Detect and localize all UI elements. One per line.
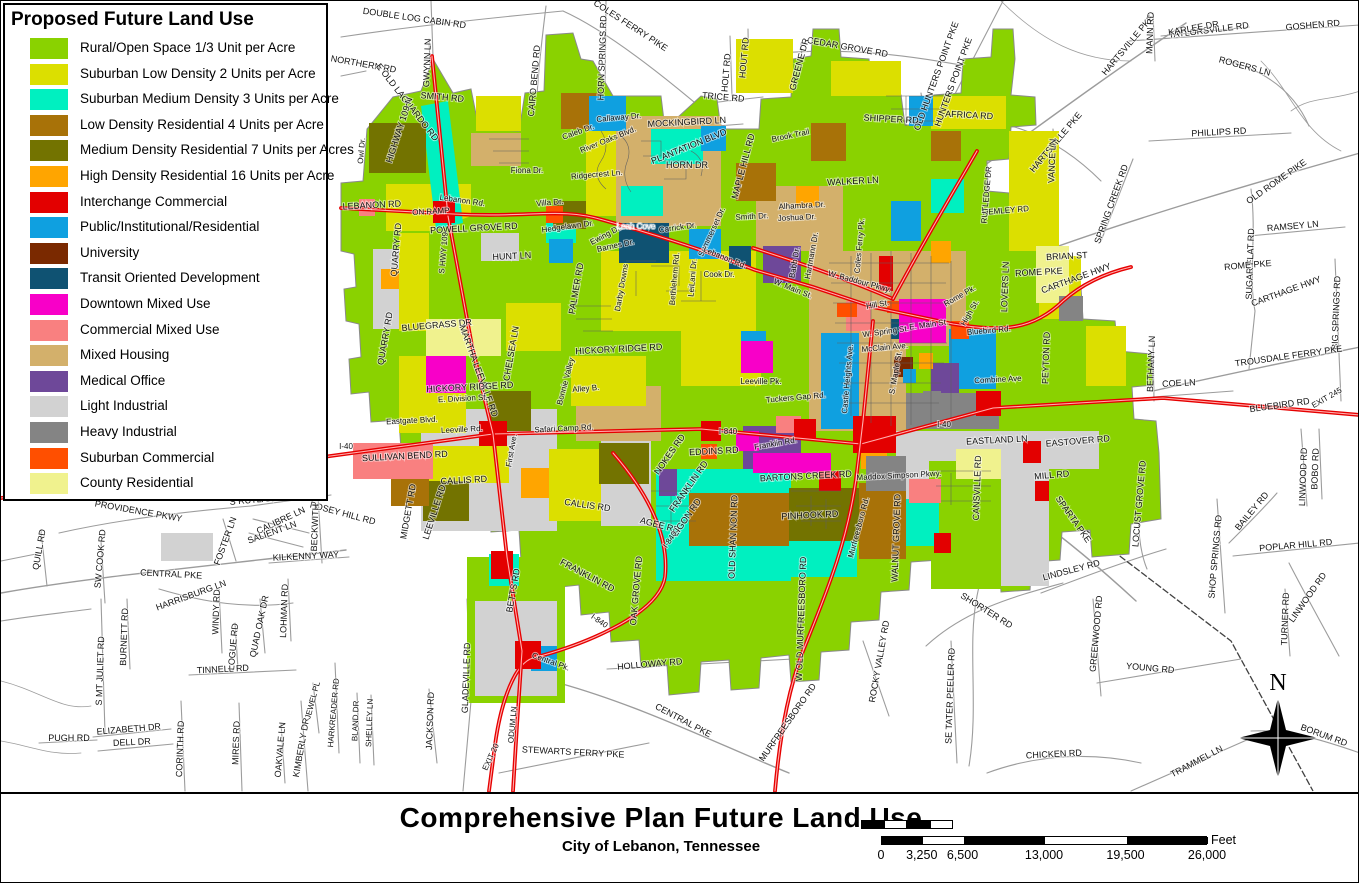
legend-item-med_office: Medical Office — [5, 370, 326, 395]
scalebar-upper-segment — [907, 820, 930, 829]
legend-swatch-cmu — [30, 320, 68, 341]
legend-swatch-sub_low — [30, 64, 68, 85]
legend-label: Heavy Industrial — [80, 424, 177, 439]
legend-item-sub_med: Suburban Medium Density 3 Units per Acre — [5, 88, 326, 113]
legend-label: Transit Oriented Development — [80, 270, 260, 285]
legend-swatch-public — [30, 217, 68, 238]
road-label: WINDY RD — [210, 589, 222, 635]
legend-item-tod: Transit Oriented Development — [5, 267, 326, 292]
land-use-patch-dtmu — [741, 341, 773, 373]
road-label: I-40 — [937, 420, 951, 429]
road-label: MIRES RD — [230, 720, 242, 765]
legend-label: Interchange Commercial — [80, 194, 227, 209]
land-use-patch-sub_low — [1086, 326, 1126, 386]
scale-bar-unit: Feet — [1211, 833, 1236, 847]
road-label: VANCE LN — [1046, 139, 1058, 184]
legend-swatch-high_res — [30, 166, 68, 187]
legend-swatch-med_office — [30, 371, 68, 392]
land-use-patch-public — [549, 239, 573, 263]
legend-label: Low Density Residential 4 Units per Acre — [80, 117, 324, 132]
land-use-patch-high_res — [931, 241, 951, 263]
scalebar-upper-segment — [884, 820, 907, 829]
legend-label: Commercial Mixed Use — [80, 322, 220, 337]
legend-swatch-sub_med — [30, 89, 68, 110]
legend-title: Proposed Future Land Use — [5, 5, 326, 33]
road-label: HORN DR — [666, 160, 708, 170]
legend-label: Rural/Open Space 1/3 Unit per Acre — [80, 40, 295, 55]
legend-item-med_res: Medium Density Residential 7 Units per A… — [5, 139, 326, 164]
scale-bar-segments — [881, 836, 1207, 845]
scalebar-tick-label: 26,000 — [1188, 848, 1226, 862]
road-label: BLAND DR — [350, 700, 360, 741]
land-use-patch-sub_low — [476, 96, 521, 131]
legend-label: Medical Office — [80, 373, 165, 388]
legend-item-rural: Rural/Open Space 1/3 Unit per Acre — [5, 37, 326, 62]
legend-label: Mixed Housing — [80, 347, 169, 362]
legend-swatch-mixed_housing — [30, 345, 68, 366]
land-use-patch-cmu — [909, 479, 941, 503]
legend-item-low_res: Low Density Residential 4 Units per Acre — [5, 114, 326, 139]
scalebar-segment — [964, 837, 1046, 844]
legend: Proposed Future Land Use Rural/Open Spac… — [3, 3, 328, 501]
legend-item-mixed_housing: Mixed Housing — [5, 344, 326, 369]
land-use-patch-sub_low — [831, 61, 901, 96]
road-label: Leah Cove — [617, 222, 656, 231]
road-label: LOHMAN RD — [278, 583, 290, 638]
road-label: SHELLEY LN — [364, 698, 375, 747]
title-block: Comprehensive Plan Future Land Use City … — [1, 792, 1359, 883]
scalebar-segment — [1045, 837, 1127, 844]
legend-swatch-heavy_ind — [30, 422, 68, 443]
road-label: Fiona Dr. — [511, 166, 543, 175]
legend-swatch-dtmu — [30, 294, 68, 315]
road-label: I-840 — [719, 427, 738, 436]
scalebar-tick-label: 13,000 — [1025, 848, 1063, 862]
scalebar-upper-segment — [861, 820, 884, 829]
legend-item-public: Public/Institutional/Residential — [5, 216, 326, 241]
land-use-patch-mixed_housing — [471, 133, 521, 166]
scalebar-tick-label: 0 — [878, 848, 885, 862]
scalebar-segment — [923, 837, 964, 844]
road-label: MANN RD — [1144, 11, 1155, 54]
road-label: CORINTH RD — [174, 720, 186, 777]
scalebar-tick-label: 6,500 — [947, 848, 978, 862]
scale-bar: 03,2506,50013,00019,50026,000 Feet — [881, 832, 1207, 872]
road-label: Leeville Pk. — [741, 377, 782, 386]
scalebar-tick-label: 3,250 — [906, 848, 937, 862]
road-label: COE LN — [1162, 377, 1196, 389]
road-label: GWYNN LN — [421, 38, 433, 87]
legend-item-light_ind: Light Industrial — [5, 395, 326, 420]
land-use-patch-low_res — [931, 131, 961, 161]
legend-item-high_res: High Density Residential 16 Units per Ac… — [5, 165, 326, 190]
legend-item-heavy_ind: Heavy Industrial — [5, 421, 326, 446]
land-use-patch-low_res — [811, 123, 846, 161]
land-use-patch-int_com — [794, 419, 816, 439]
legend-label: Suburban Medium Density 3 Units per Acre — [80, 91, 339, 106]
map-document: DOUBLE LOG CABIN RDCOLES FERRY PIKENORTH… — [0, 0, 1359, 883]
legend-item-int_com: Interchange Commercial — [5, 191, 326, 216]
legend-label: County Residential — [80, 475, 193, 490]
land-use-patch-light_ind — [161, 533, 213, 561]
legend-swatch-rural — [30, 38, 68, 59]
land-use-patch-sub_low — [399, 233, 429, 331]
road-label: BETHANY LN — [1145, 336, 1157, 393]
road-label: PEYTON RD — [1040, 331, 1052, 384]
scalebar-segment — [882, 837, 923, 844]
legend-swatch-sub_com — [30, 448, 68, 469]
land-use-patch-sub_med — [621, 186, 663, 216]
legend-swatch-county_res — [30, 473, 68, 494]
land-use-patch-int_com — [934, 533, 951, 553]
legend-swatch-low_res — [30, 115, 68, 136]
legend-label: University — [80, 245, 139, 260]
road-label: BOBO RD — [1309, 447, 1320, 489]
map-title: Comprehensive Plan Future Land Use — [1, 802, 1321, 834]
scale-bar-ticks: 03,2506,50013,00019,50026,000 — [881, 848, 1207, 864]
land-use-patch-high_res — [521, 468, 549, 498]
legend-label: Downtown Mixed Use — [80, 296, 211, 311]
legend-swatch-light_ind — [30, 396, 68, 417]
legend-label: Suburban Commercial — [80, 450, 214, 465]
land-use-patch-sub_com — [837, 303, 857, 317]
road-label: LINWOOD RD — [1297, 447, 1309, 506]
land-use-patch-public — [891, 201, 921, 241]
legend-label: Public/Institutional/Residential — [80, 219, 259, 234]
legend-swatch-univ — [30, 243, 68, 264]
road-label: DELL DR — [113, 736, 152, 748]
legend-item-county_res: County Residential — [5, 472, 326, 497]
legend-item-dtmu: Downtown Mixed Use — [5, 293, 326, 318]
road-label: I-40 — [339, 442, 353, 451]
land-use-patch-med_office — [931, 363, 959, 393]
legend-item-sub_low: Suburban Low Density 2 Units per Acre — [5, 63, 326, 88]
scalebar-upper-segment — [930, 820, 953, 829]
legend-item-sub_com: Suburban Commercial — [5, 447, 326, 472]
road-label: PUGH RD — [48, 733, 90, 743]
land-use-patch-public — [903, 369, 916, 383]
land-use-patch-int_com — [1023, 441, 1041, 463]
legend-swatch-med_res — [30, 140, 68, 161]
legend-label: Light Industrial — [80, 398, 168, 413]
north-label: N — [1269, 670, 1286, 696]
legend-label: Suburban Low Density 2 Units per Acre — [80, 66, 316, 81]
legend-item-univ: University — [5, 242, 326, 267]
scale-bar-upper — [861, 820, 953, 829]
legend-item-cmu: Commercial Mixed Use — [5, 319, 326, 344]
road-label: BURNETT RD — [118, 607, 130, 666]
legend-swatch-tod — [30, 268, 68, 289]
scalebar-tick-label: 19,500 — [1106, 848, 1144, 862]
road-label: Cook Dr. — [703, 270, 734, 279]
road-label: JACKSON RD — [424, 691, 436, 750]
legend-swatch-int_com — [30, 192, 68, 213]
legend-items: Rural/Open Space 1/3 Unit per AcreSuburb… — [5, 37, 326, 499]
scalebar-segment — [1127, 837, 1209, 844]
road-label: HUNT LN — [492, 250, 531, 262]
road-label: Smith Dr. — [735, 211, 768, 222]
legend-label: High Density Residential 16 Units per Ac… — [80, 168, 334, 183]
land-use-patch-sub_low — [571, 356, 646, 406]
legend-label: Medium Density Residential 7 Units per A… — [80, 142, 354, 157]
land-use-patch-int_com — [1035, 481, 1049, 501]
road-label: LOVERS LN — [999, 261, 1011, 312]
